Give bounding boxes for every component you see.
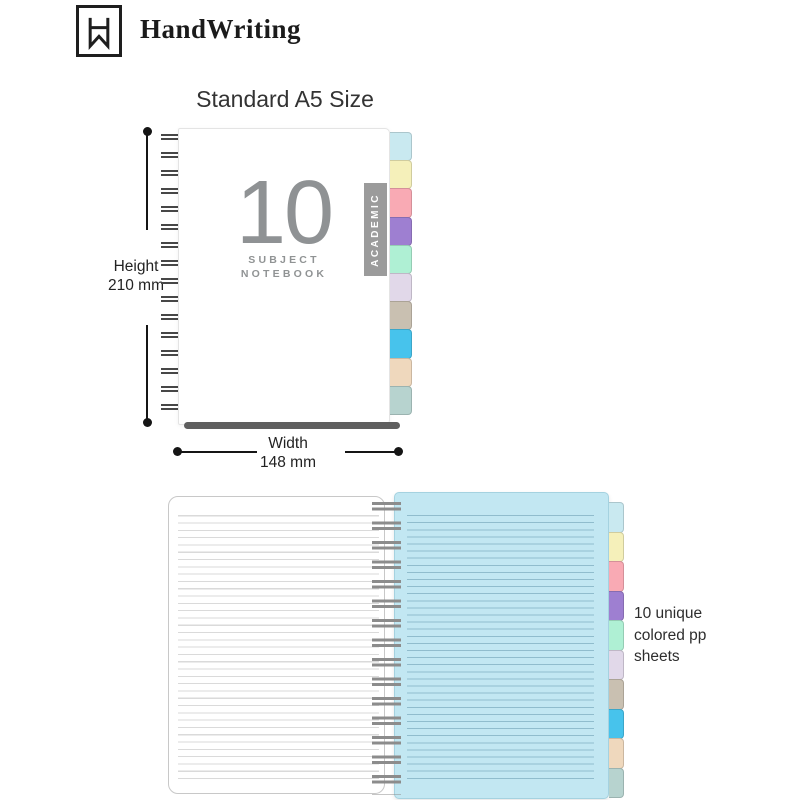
product-image: HandWriting Standard A5 Size Height 210 …: [0, 0, 800, 800]
note-line-2: colored pp: [634, 625, 706, 647]
color-tab: [609, 768, 624, 799]
color-tab: [390, 245, 412, 274]
color-tab: [609, 709, 624, 740]
brand-name: HandWriting: [140, 14, 301, 45]
color-tab: [390, 301, 412, 330]
color-tab: [390, 386, 412, 415]
height-dim-line-bottom: [146, 325, 148, 421]
height-dim-dot-bottom: [143, 418, 152, 427]
color-tab: [609, 650, 624, 681]
spiral-binding-left: [161, 134, 178, 421]
color-tab: [390, 358, 412, 387]
color-tab: [609, 620, 624, 651]
open-right-page: [394, 492, 609, 799]
ruled-lines-left: [178, 509, 379, 783]
color-tab: [390, 160, 412, 189]
open-tabs: [609, 503, 624, 798]
color-tab: [390, 188, 412, 217]
color-tab: [390, 217, 412, 246]
open-left-page: [168, 496, 385, 794]
cover-big-number: 10: [178, 168, 390, 258]
width-dim-line-right: [345, 451, 396, 453]
cover-bottom-shadow: [184, 422, 400, 429]
cover-notebook-text: NOTEBOOK: [178, 268, 390, 280]
note-line-1: 10 unique: [634, 603, 706, 625]
color-tab: [390, 273, 412, 302]
height-dim-line-top: [146, 134, 148, 230]
width-label: Width: [233, 434, 343, 453]
ruled-lines-right: [407, 509, 594, 784]
color-tab: [390, 132, 412, 161]
color-tab: [609, 679, 624, 710]
academic-banner: ACADEMIC: [364, 183, 387, 276]
brand-logo: [76, 5, 122, 57]
color-tab: [609, 561, 624, 592]
width-dimension-label: Width 148 mm: [233, 434, 343, 472]
note-line-3: sheets: [634, 646, 706, 668]
section-title: Standard A5 Size: [130, 86, 440, 113]
color-tab: [390, 329, 412, 358]
color-tab: [609, 738, 624, 769]
academic-banner-text: ACADEMIC: [370, 193, 381, 267]
color-tab: [609, 532, 624, 563]
bookmark-monogram-icon: [84, 13, 114, 51]
color-tab: [609, 591, 624, 622]
cover-subject-text: SUBJECT: [178, 254, 390, 266]
cover-tabs: [390, 133, 412, 415]
spiral-binding-center: [372, 502, 401, 795]
width-dim-dot-right: [394, 447, 403, 456]
width-value: 148 mm: [233, 453, 343, 472]
pp-sheets-note: 10 unique colored pp sheets: [634, 603, 706, 668]
color-tab: [609, 502, 624, 533]
